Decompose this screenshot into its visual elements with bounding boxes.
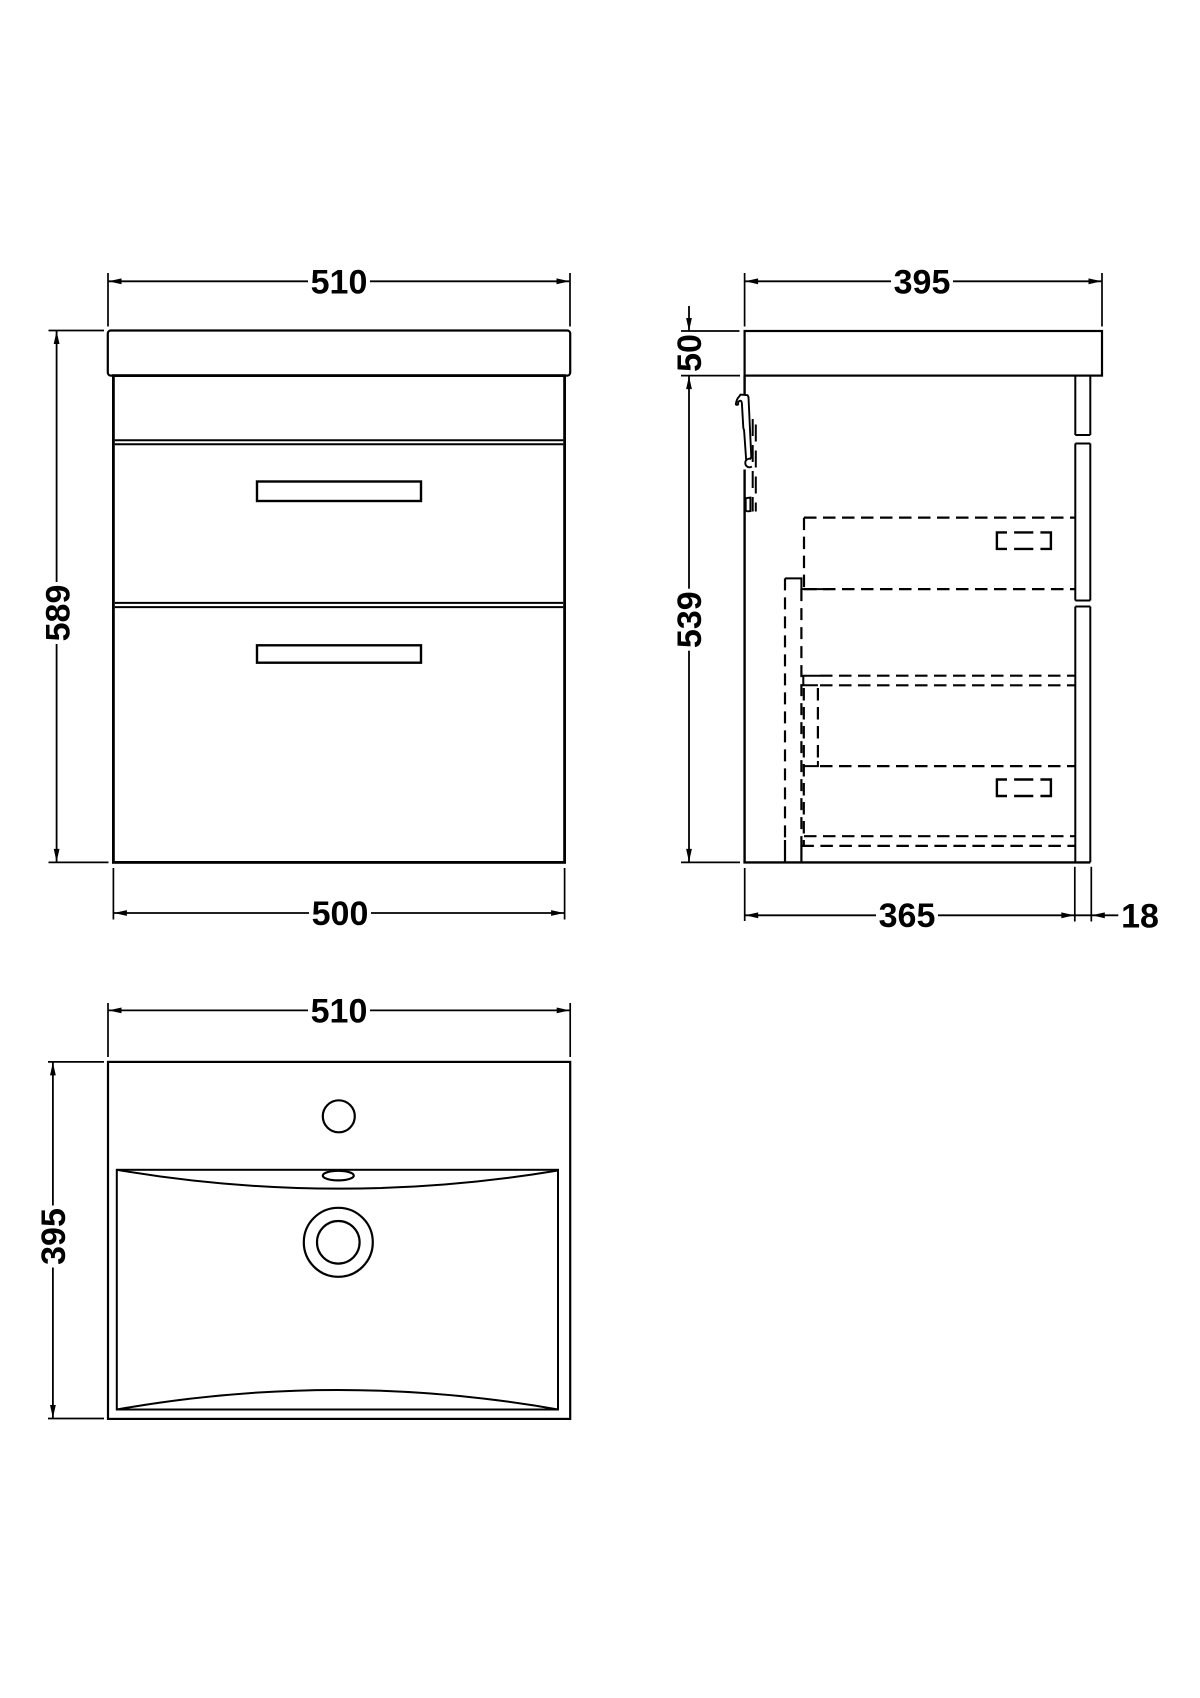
svg-text:395: 395 bbox=[894, 263, 951, 301]
svg-text:395: 395 bbox=[35, 1208, 73, 1265]
svg-text:589: 589 bbox=[40, 585, 78, 642]
svg-text:510: 510 bbox=[311, 992, 368, 1030]
svg-text:510: 510 bbox=[311, 263, 368, 301]
svg-text:18: 18 bbox=[1121, 897, 1159, 935]
svg-text:365: 365 bbox=[879, 897, 936, 935]
svg-text:50: 50 bbox=[671, 334, 709, 372]
svg-text:539: 539 bbox=[671, 591, 709, 648]
svg-text:500: 500 bbox=[312, 895, 369, 933]
